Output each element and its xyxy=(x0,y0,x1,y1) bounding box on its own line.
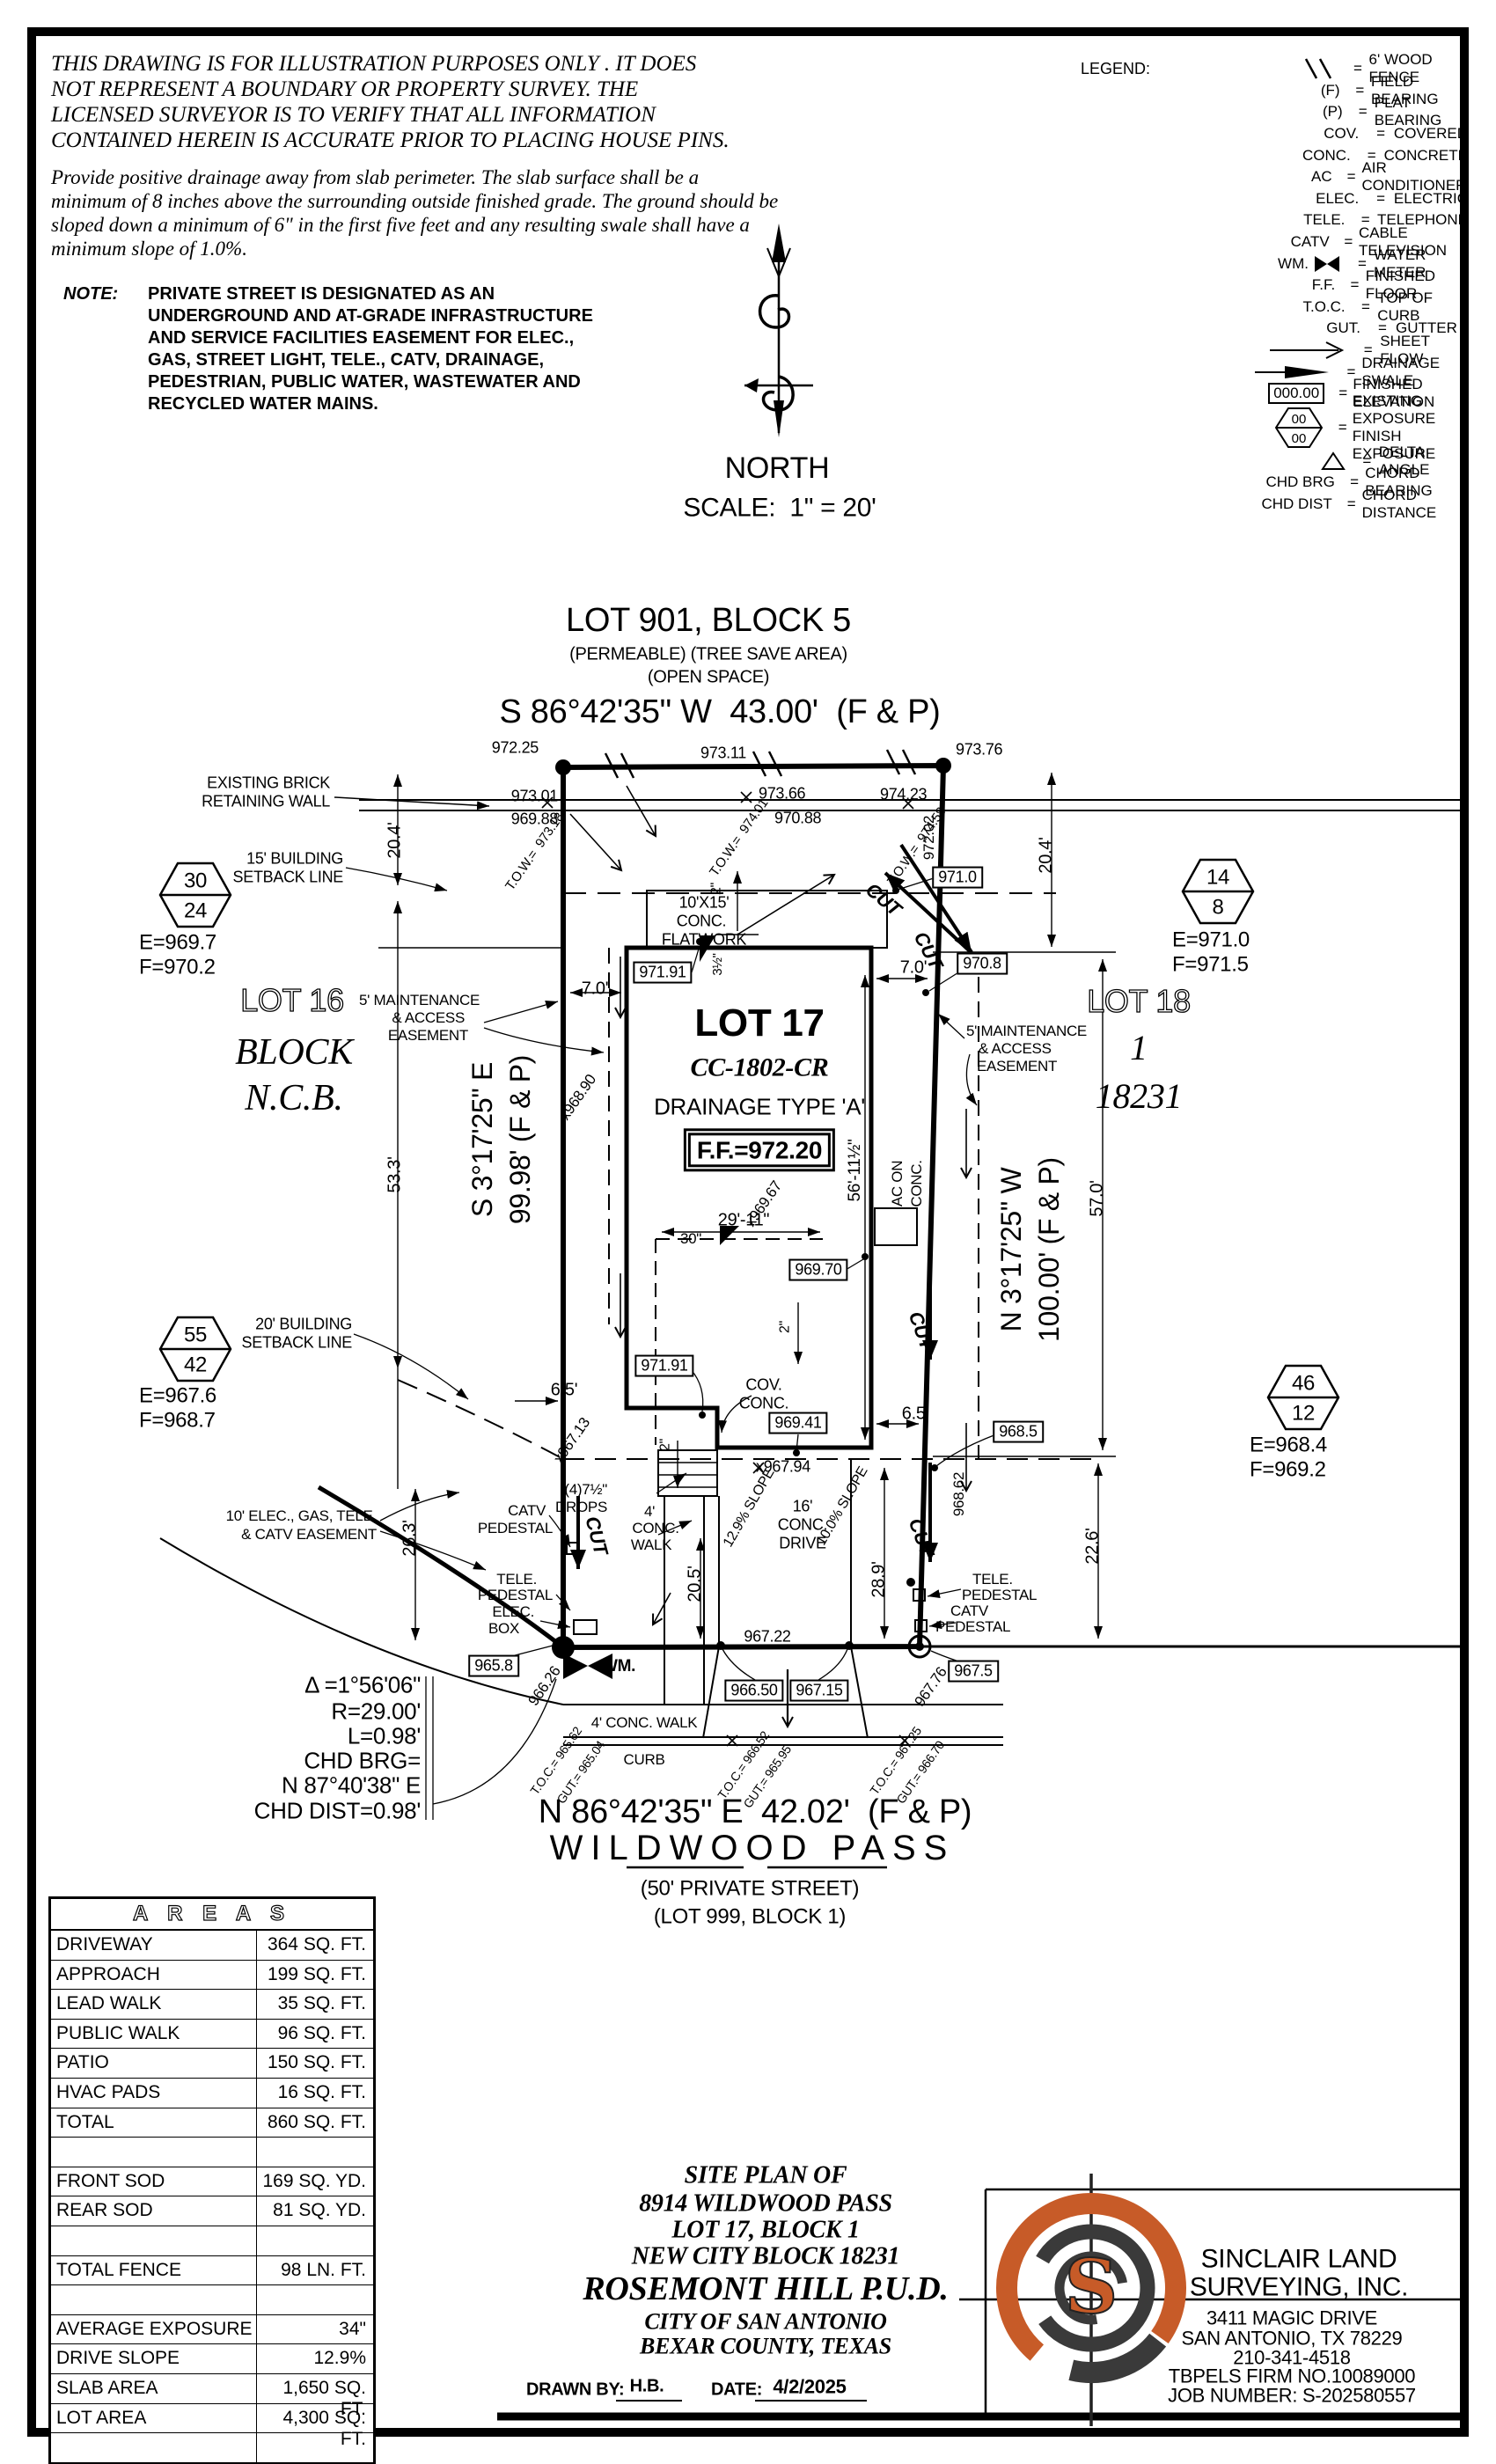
plan-label: ROSEMONT HILL P.U.D. xyxy=(583,2272,948,2307)
legend-equals: = xyxy=(1344,276,1365,294)
text-line: sloped down a minimum of 6" in the first… xyxy=(51,213,790,237)
legend-symbol: (P) xyxy=(1223,103,1352,121)
plan-label: 14 xyxy=(1206,866,1229,888)
plan-label: 971.91 xyxy=(634,1355,693,1377)
areas-row-label: REAR SOD xyxy=(51,2196,257,2226)
plan-label: COV. xyxy=(745,1377,781,1394)
disclaimer-paragraph: THIS DRAWING IS FOR ILLUSTRATION PURPOSE… xyxy=(51,51,790,153)
plan-label: 18231 xyxy=(1096,1078,1183,1115)
areas-row: LOT AREA4,300 SQ. FT. xyxy=(51,2404,373,2434)
plan-label: 970.88 xyxy=(774,810,821,827)
areas-row-label: TOTAL xyxy=(51,2108,257,2138)
plan-label: 26.3' xyxy=(401,1520,420,1556)
plan-label: TELE. xyxy=(496,1572,537,1588)
svg-text:S: S xyxy=(1065,2243,1118,2330)
legend-symbol: WM. xyxy=(1223,254,1351,274)
areas-row-value: 199 SQ. FT. xyxy=(257,1961,373,1990)
plan-label: 969.70 xyxy=(788,1259,847,1281)
plan-label: CONC. xyxy=(739,1396,789,1412)
plan-label: 7.0' xyxy=(900,959,927,978)
legend-equals: = xyxy=(1349,82,1371,99)
plan-label: CONC. xyxy=(909,1160,925,1206)
plan-label: F=969.2 xyxy=(1250,1458,1326,1480)
plan-label: CURB xyxy=(624,1752,665,1768)
plan-label: 970.8 xyxy=(957,953,1008,975)
areas-row: DRIVE SLOPE12.9% xyxy=(51,2344,373,2374)
plan-label: 967.15 xyxy=(789,1680,848,1702)
legend-equals: = xyxy=(1333,385,1353,402)
plan-label: 967.5 xyxy=(948,1661,999,1683)
areas-row-value: 81 SQ. YD. xyxy=(257,2196,373,2226)
plan-label: E=969.7 xyxy=(139,931,216,953)
legend-label: ELECTRIC xyxy=(1394,190,1468,208)
areas-row-value: 1,650 SQ. FT. xyxy=(257,2374,373,2403)
plan-label: (LOT 999, BLOCK 1) xyxy=(654,1905,846,1927)
legend-symbol: TELE. xyxy=(1223,211,1353,229)
plan-label: 10' ELEC., GAS, TELE. xyxy=(226,1508,377,1524)
areas-row-value: 16 SQ. FT. xyxy=(257,2079,373,2108)
disclaimer-block: THIS DRAWING IS FOR ILLUSTRATION PURPOSE… xyxy=(51,51,790,415)
plan-label: LOT 17 xyxy=(694,1003,824,1044)
plan-label: FLATWORK xyxy=(662,932,746,949)
plan-label: F.F.=972.20 xyxy=(688,1133,831,1167)
legend-item: (P)=PLAT BEARING xyxy=(1223,101,1468,123)
areas-row-value xyxy=(257,2138,373,2167)
areas-row-label: HVAC PADS xyxy=(51,2079,257,2108)
plan-label: 6.5' xyxy=(902,1405,928,1424)
areas-row-value: 150 SQ. FT. xyxy=(257,2049,373,2078)
legend-symbol: ELEC. xyxy=(1223,190,1368,208)
areas-row: SLAB AREA1,650 SQ. FT. xyxy=(51,2374,373,2404)
plan-label: E=971.0 xyxy=(1172,928,1250,950)
legend-symbol: T.O.C. xyxy=(1223,298,1354,316)
text-line: AND SERVICE FACILITIES EASEMENT FOR ELEC… xyxy=(148,327,790,349)
plan-label: CATV xyxy=(508,1503,546,1519)
plan-label: SCALE: 1" = 20' xyxy=(683,494,876,522)
areas-row-label: PUBLIC WALK xyxy=(51,2020,257,2049)
plan-label: (PERMEABLE) (TREE SAVE AREA) xyxy=(569,646,847,664)
text-line: PEDESTRIAN, PUBLIC WATER, WASTEWATER AND xyxy=(148,371,790,393)
legend-symbol: GUT. xyxy=(1223,319,1369,337)
plan-label: LOT 18 xyxy=(1087,985,1191,1018)
text-line: PRIVATE STREET IS DESIGNATED AS AN xyxy=(148,283,790,305)
plan-label: 1 xyxy=(1130,1030,1148,1067)
plan-label: CC-1802-CR xyxy=(690,1053,828,1082)
areas-row-label: LEAD WALK xyxy=(51,1990,257,2019)
areas-row-label: FRONT SOD xyxy=(51,2167,257,2196)
areas-row-value: 96 SQ. FT. xyxy=(257,2020,373,2049)
plan-label: PEDESTAL xyxy=(962,1588,1037,1603)
plan-label: N 86°42'35" E 42.02' (F & P) xyxy=(539,1795,972,1830)
plan-label: 966.50 xyxy=(724,1680,783,1702)
plan-label: CONC. xyxy=(677,913,727,930)
plan-label: 971.91 xyxy=(633,962,692,984)
plan-label: ELEC. xyxy=(492,1604,534,1620)
note-label: NOTE: xyxy=(63,283,118,305)
plan-label: 4' xyxy=(644,1504,655,1520)
areas-row-value: 169 SQ. YD. xyxy=(257,2167,373,2196)
plan-label: 30" xyxy=(680,1231,701,1247)
areas-row: FRONT SOD169 SQ. YD. xyxy=(51,2167,373,2197)
plan-label: S 3°17'25" E xyxy=(468,1062,498,1217)
plan-label: & ACCESS xyxy=(392,1010,465,1026)
areas-row-value: 364 SQ. FT. xyxy=(257,1931,373,1960)
plan-label: LOT 17, BLOCK 1 xyxy=(671,2217,859,2242)
text-line: NOT REPRESENT A BOUNDARY OR PROPERTY SUR… xyxy=(51,77,790,102)
legend-item: ELEC.=ELECTRIC xyxy=(1223,188,1468,210)
svg-text:00: 00 xyxy=(1291,412,1306,427)
plan-label: 29'-11" xyxy=(718,1212,770,1230)
areas-table-title: A R E A S xyxy=(51,1899,373,1931)
plan-label: 56'-11½" xyxy=(847,1139,864,1201)
plan-label: 973.11 xyxy=(700,745,746,762)
plan-label: 10'X15' xyxy=(679,895,730,912)
legend-item: CHD DIST=CHORD DISTANCE xyxy=(1223,494,1468,516)
text-line: THIS DRAWING IS FOR ILLUSTRATION PURPOSE… xyxy=(51,51,790,77)
plan-label: BEXAR COUNTY, TEXAS xyxy=(640,2334,891,2358)
areas-row-value: 34" xyxy=(257,2315,373,2344)
plan-label: WILDWOOD PASS xyxy=(550,1830,956,1866)
plan-label: 2" xyxy=(779,1321,794,1333)
areas-row-value xyxy=(257,2285,373,2314)
text-line: minimum slope of 1.0%. xyxy=(51,237,790,260)
plan-label: RETAINING WALL xyxy=(202,794,330,810)
plan-label: PEDESTAL xyxy=(935,1619,1010,1635)
plan-label: F=971.5 xyxy=(1172,953,1249,975)
plan-label: NORTH xyxy=(725,453,830,485)
plan-label: EASEMENT xyxy=(388,1028,468,1044)
plan-label: TELE. xyxy=(972,1572,1013,1588)
legend-symbol: 0000 xyxy=(1223,406,1333,450)
legend-equals: = xyxy=(1368,125,1394,143)
areas-row: AVERAGE EXPOSURE34" xyxy=(51,2315,373,2345)
plan-label: CONC. xyxy=(632,1521,678,1536)
plan-label: JOB NUMBER: S-202580557 xyxy=(1168,2385,1416,2405)
legend-symbol: (F) xyxy=(1223,82,1349,99)
plan-label: & CATV EASEMENT xyxy=(241,1527,377,1543)
plan-label: BOX xyxy=(488,1621,519,1637)
survey-sheet: S THIS DRAWING IS FOR ILLUSTRATION PURPO… xyxy=(0,0,1496,2464)
plan-label: N 3°17'25" W xyxy=(997,1168,1027,1332)
plan-label: WALK xyxy=(631,1537,671,1553)
areas-row-label: LOT AREA xyxy=(51,2404,257,2433)
areas-row xyxy=(51,2138,373,2167)
legend-title: LEGEND: xyxy=(1081,60,1150,78)
plan-label: SURVEYING, INC. xyxy=(1190,2273,1408,2301)
plan-label: SETBACK LINE xyxy=(233,869,343,886)
plan-label: SAN ANTONIO, TX 78229 xyxy=(1182,2328,1403,2348)
legend-item: COV.=COVERED xyxy=(1223,123,1468,145)
areas-row: PATIO150 SQ. FT. xyxy=(51,2049,373,2079)
areas-table-rows: DRIVEWAY364 SQ. FT.APPROACH199 SQ. FT.LE… xyxy=(51,1931,373,2462)
plan-label: 20.4' xyxy=(1038,837,1056,873)
legend-symbol xyxy=(1223,57,1346,80)
plan-label: 973.76 xyxy=(956,742,1002,759)
legend-label: CHORD DISTANCE xyxy=(1362,487,1468,522)
text-line: GAS, STREET LIGHT, TELE., CATV, DRAINAGE… xyxy=(148,349,790,371)
areas-row: APPROACH199 SQ. FT. xyxy=(51,1961,373,1991)
legend-symbol xyxy=(1223,341,1356,360)
plan-label: EXISTING BRICK xyxy=(207,775,330,792)
plan-label: CATV xyxy=(950,1603,988,1619)
plan-label: LOT 901, BLOCK 5 xyxy=(566,604,851,639)
areas-row: TOTAL FENCE98 LN. FT. xyxy=(51,2256,373,2286)
plan-label: 969.41 xyxy=(768,1412,827,1434)
plan-label: 99.98' (F & P) xyxy=(506,1055,536,1224)
plan-label: DATE: xyxy=(711,2381,762,2400)
plan-label: H.B. xyxy=(630,2378,664,2396)
legend-item: AC=AIR CONDITIONER xyxy=(1223,166,1468,188)
plan-label: 973.66 xyxy=(759,786,805,803)
plan-label: & ACCESS xyxy=(979,1041,1052,1057)
plan-label: 8914 WILDWOOD PASS xyxy=(639,2190,892,2216)
areas-row-label xyxy=(51,2433,257,2462)
plan-label: 974.23 xyxy=(880,787,927,803)
plan-label: 2" xyxy=(659,1439,674,1451)
plan-label: SINCLAIR LAND xyxy=(1201,2245,1397,2273)
legend-symbol: 000.00 xyxy=(1223,383,1333,404)
areas-row-value: 12.9% xyxy=(257,2344,373,2373)
text-line: LICENSED SURVEYOR IS TO VERIFY THAT ALL … xyxy=(51,102,790,128)
plan-label: DRAWN BY: xyxy=(526,2381,624,2400)
plan-label: E=967.6 xyxy=(139,1384,216,1406)
plan-label: 4' CONC. WALK xyxy=(591,1715,698,1731)
plan-label: LOT 16 xyxy=(240,984,344,1017)
plan-label: 42 xyxy=(184,1353,207,1375)
plan-label: 15' BUILDING xyxy=(246,851,343,868)
areas-row xyxy=(51,2433,373,2462)
areas-row xyxy=(51,2285,373,2315)
legend-equals: = xyxy=(1368,190,1394,208)
plan-label: AC ON xyxy=(890,1161,906,1206)
plan-label: 973.01 xyxy=(511,788,558,805)
legend-symbol: COV. xyxy=(1223,125,1368,143)
legend-symbol: CHD DIST xyxy=(1223,495,1341,513)
plan-label: SITE PLAN OF xyxy=(685,2162,847,2188)
private-street-note: NOTE: PRIVATE STREET IS DESIGNATED AS AN… xyxy=(51,283,790,415)
plan-label: CITY OF SAN ANTONIO xyxy=(644,2309,886,2333)
legend-item: T.O.C.=TOP OF CURB xyxy=(1223,297,1468,319)
plan-label: WM. xyxy=(602,1658,635,1676)
areas-row-value xyxy=(257,2433,373,2462)
areas-row: DRIVEWAY364 SQ. FT. xyxy=(51,1931,373,1961)
plan-label: PEDESTAL xyxy=(478,1521,553,1536)
legend-symbol xyxy=(1223,451,1355,472)
legend-symbol: CHD BRG xyxy=(1223,473,1344,491)
legend-symbol xyxy=(1223,364,1341,380)
areas-table: A R E A S DRIVEWAY364 SQ. FT.APPROACH199… xyxy=(48,1896,376,2464)
legend-label: COVERED xyxy=(1394,125,1468,143)
plan-label: F=970.2 xyxy=(139,956,216,978)
plan-label: 46 xyxy=(1292,1372,1315,1394)
text-line: RECYCLED WATER MAINS. xyxy=(148,393,790,415)
plan-label: SETBACK LINE xyxy=(242,1335,352,1352)
legend-equals: = xyxy=(1352,103,1375,121)
plan-label: 24 xyxy=(184,899,207,921)
legend-equals: = xyxy=(1333,419,1353,436)
plan-label: 965.8 xyxy=(468,1655,519,1677)
areas-row xyxy=(51,2226,373,2256)
plan-label: N 87°40'38" E xyxy=(282,1773,421,1797)
svg-text:00: 00 xyxy=(1291,431,1306,446)
legend-symbol: CONC. xyxy=(1223,147,1360,165)
areas-row-label: APPROACH xyxy=(51,1961,257,1990)
plan-label: 30 xyxy=(184,869,207,891)
plan-label: S 86°42'35" W 43.00' (F & P) xyxy=(500,695,941,730)
areas-row-label: DRIVEWAY xyxy=(51,1931,257,1960)
plan-label: (4)7½" xyxy=(564,1482,607,1498)
legend-equals: = xyxy=(1341,495,1362,513)
plan-label: (50' PRIVATE STREET) xyxy=(641,1877,859,1899)
plan-label: CHD BRG= xyxy=(304,1749,421,1772)
plan-label: EASEMENT xyxy=(977,1059,1057,1074)
areas-row-label xyxy=(51,2285,257,2314)
legend-symbol: CATV xyxy=(1223,233,1338,251)
plan-label: DROPS xyxy=(555,1500,607,1515)
plan-label: 5' MAINTENANCE xyxy=(966,1023,1087,1039)
areas-row-label xyxy=(51,2138,257,2167)
drainage-note-paragraph: Provide positive drainage away from slab… xyxy=(51,165,790,260)
text-line: minimum of 8 inches above the surroundin… xyxy=(51,189,790,213)
plan-label: 20.5' xyxy=(686,1566,705,1602)
legend-equals: = xyxy=(1338,233,1359,251)
plan-label: 3½" xyxy=(711,953,725,975)
plan-label: 22.6' xyxy=(1084,1528,1103,1564)
plan-label: 968.62 xyxy=(951,1472,967,1516)
plan-label: Δ =1°56'06" xyxy=(304,1673,421,1697)
areas-row: REAR SOD81 SQ. YD. xyxy=(51,2196,373,2226)
areas-row-value xyxy=(257,2226,373,2255)
areas-row: LEAD WALK35 SQ. FT. xyxy=(51,1990,373,2020)
plan-label: 16' xyxy=(793,1499,813,1515)
plan-label: 20' BUILDING xyxy=(255,1316,352,1333)
areas-row-label: DRIVE SLOPE xyxy=(51,2344,257,2373)
plan-label: 20.4' xyxy=(386,822,405,858)
legend-equals: = xyxy=(1346,60,1368,77)
areas-row: PUBLIC WALK96 SQ. FT. xyxy=(51,2020,373,2050)
plan-label: L=0.98' xyxy=(348,1724,421,1748)
plan-label: 12 xyxy=(1292,1402,1315,1424)
legend-symbol: F.F. xyxy=(1223,276,1344,294)
plan-label: 971.0 xyxy=(932,867,983,889)
plan-label: NEW CITY BLOCK 18231 xyxy=(632,2243,899,2269)
areas-row: TOTAL860 SQ. FT. xyxy=(51,2108,373,2138)
areas-row-value: 860 SQ. FT. xyxy=(257,2108,373,2138)
areas-row-value: 35 SQ. FT. xyxy=(257,1990,373,2019)
plan-label: 7.0' xyxy=(582,980,608,999)
legend-equals: = xyxy=(1341,168,1362,186)
plan-label: N.C.B. xyxy=(245,1079,342,1118)
plan-label: 100.00' (F & P) xyxy=(1035,1157,1065,1342)
plan-label: 972.25 xyxy=(492,740,539,757)
plan-label: 5' MAINTENANCE xyxy=(359,993,480,1008)
legend-items: =6' WOOD FENCE(F)=FIELD BEARING(P)=PLAT … xyxy=(1223,58,1468,515)
plan-label: 8 xyxy=(1212,896,1223,918)
areas-row-label: AVERAGE EXPOSURE xyxy=(51,2315,257,2344)
text-line: CONTAINED HEREIN IS ACCURATE PRIOR TO PL… xyxy=(51,128,790,153)
areas-row-label: PATIO xyxy=(51,2049,257,2078)
plan-label: BLOCK xyxy=(235,1033,353,1072)
areas-row-label: TOTAL FENCE xyxy=(51,2256,257,2285)
plan-label: 4/2/2025 xyxy=(773,2376,846,2396)
legend-symbol: AC xyxy=(1223,168,1341,186)
areas-row-label: SLAB AREA xyxy=(51,2374,257,2403)
plan-label: TBPELS FIRM NO.10089000 xyxy=(1169,2365,1415,2386)
legend: LEGEND: =6' WOOD FENCE(F)=FIELD BEARING(… xyxy=(1081,58,1468,515)
plan-label: 57.0' xyxy=(1089,1180,1107,1216)
plan-label: 3411 MAGIC DRIVE xyxy=(1206,2307,1377,2328)
plan-label: 53.3' xyxy=(386,1156,405,1192)
sheet-flow-arrows xyxy=(570,786,966,1727)
plan-label: CHD DIST=0.98' xyxy=(254,1799,421,1822)
plan-label: 6.5' xyxy=(551,1382,577,1400)
plan-label: R=29.00' xyxy=(331,1699,421,1723)
plan-label: F=968.7 xyxy=(139,1409,216,1431)
plan-label: (OPEN SPACE) xyxy=(648,669,769,687)
areas-row-label xyxy=(51,2226,257,2255)
areas-row: HVAC PADS16 SQ. FT. xyxy=(51,2079,373,2108)
plan-label: PEDESTAL xyxy=(478,1588,553,1603)
text-line: Provide positive drainage away from slab… xyxy=(51,165,790,189)
plan-label: DRAINAGE TYPE 'A' xyxy=(654,1095,865,1118)
areas-row-value: 98 LN. FT. xyxy=(257,2256,373,2285)
plan-label: 972.02 xyxy=(921,816,937,860)
plan-label: 967.22 xyxy=(744,1629,790,1646)
plan-label: 28.9' xyxy=(870,1561,889,1597)
plan-label: E=968.4 xyxy=(1250,1434,1327,1456)
plan-label: 2" xyxy=(710,883,725,895)
plan-label: 968.5 xyxy=(993,1421,1044,1443)
legend-equals: = xyxy=(1354,298,1378,316)
plan-label: 55 xyxy=(184,1324,207,1346)
areas-row-value: 4,300 SQ. FT. xyxy=(257,2404,373,2433)
text-line: UNDERGROUND AND AT-GRADE INFRASTRUCTURE xyxy=(148,305,790,327)
